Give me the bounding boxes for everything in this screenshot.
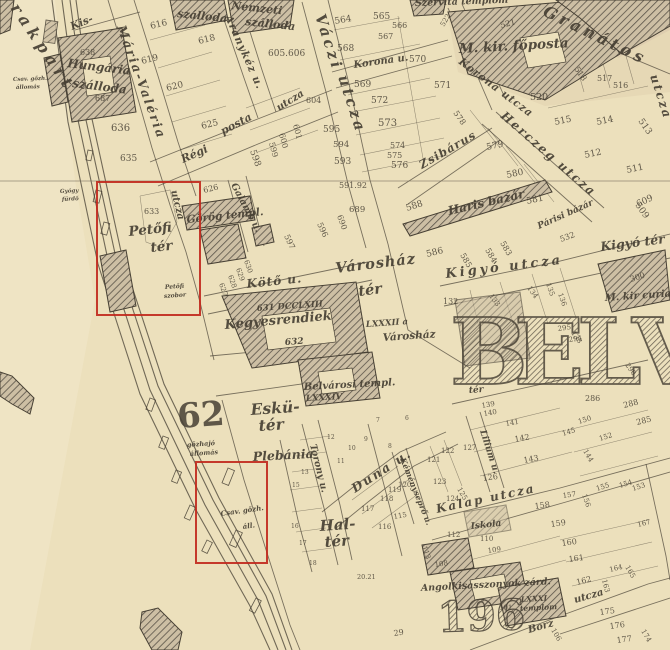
parcel-number: 18 xyxy=(309,560,317,567)
parcel-number: 570 xyxy=(409,55,426,65)
parcel-number: 633 xyxy=(144,207,159,216)
parcel-number: 568 xyxy=(337,44,354,54)
parcel-number: 571 xyxy=(434,81,451,91)
place-label: tér xyxy=(357,280,384,300)
parcel-number: 567 xyxy=(378,32,393,41)
building-label: 632 xyxy=(285,337,304,348)
parcel-number: 593 xyxy=(334,157,351,167)
sheet-number: 62 xyxy=(176,394,226,437)
parcel-number: 123 xyxy=(433,478,446,486)
place-label: Petőfi xyxy=(164,283,185,291)
place-label: tér xyxy=(150,238,174,256)
parcel-number: 110 xyxy=(480,535,493,543)
place-label: Gyógy xyxy=(60,187,80,195)
parcel-number: 10 xyxy=(348,445,356,452)
parcel-number: 9 xyxy=(364,436,368,443)
parcel-number: 575 xyxy=(387,151,402,160)
parcel-number: 8 xyxy=(388,443,392,450)
parcel-number: 29 xyxy=(393,628,404,638)
parcel-number: 605.606 xyxy=(268,49,305,59)
parcel-number: 12 xyxy=(327,434,335,441)
parcel-number: 573 xyxy=(378,118,397,129)
parcel-number: 687 xyxy=(95,94,110,103)
parcel-number: 20.21 xyxy=(357,573,376,581)
parcel-number: 121 xyxy=(427,456,440,464)
place-label: tér xyxy=(324,531,351,551)
parcel-number: 636 xyxy=(111,123,130,134)
building xyxy=(200,224,246,264)
parcel-number: 13 xyxy=(301,469,309,476)
parcel-number: 122 xyxy=(441,447,454,455)
parcel-number: 15 xyxy=(292,482,300,489)
parcel-number: 565 xyxy=(373,12,390,22)
parcel-number: 517 xyxy=(597,74,612,83)
parcel-number: 604 xyxy=(306,96,321,105)
map-viewport: rakpartKis-Mária-ValériautczaAranykéz u.… xyxy=(0,0,670,650)
parcel-number: 11 xyxy=(337,458,345,465)
place-label: állomás xyxy=(16,83,40,91)
parcel-number: 572 xyxy=(371,96,388,106)
parcel-number: 689 xyxy=(349,205,365,215)
map-canvas[interactable]: rakpartKis-Mária-ValériautczaAranykéz u.… xyxy=(0,0,670,650)
parcel-number: 594 xyxy=(333,140,349,150)
parcel-number: 116 xyxy=(378,523,392,531)
parcel-number: 7 xyxy=(376,417,380,424)
parcel-number: 635 xyxy=(120,154,137,164)
parcel-number: 117 xyxy=(361,505,374,513)
parcel-number: 118 xyxy=(380,495,393,503)
parcel-number: 112 xyxy=(447,531,460,539)
parcel-number: 17 xyxy=(299,540,307,547)
parcel-number: 127 xyxy=(463,444,476,452)
parcel-number: 16 xyxy=(291,523,299,530)
parcel-number: 574 xyxy=(390,141,405,150)
sheet-number: 196 xyxy=(437,590,526,642)
parcel-number: 566 xyxy=(392,21,407,30)
parcel-number: 569 xyxy=(354,80,371,90)
place-label: Csav. gőzh. xyxy=(13,75,47,83)
district-letter: V xyxy=(631,298,670,406)
parcel-number: 520 xyxy=(530,92,548,103)
parcel-number: 6 xyxy=(405,415,409,422)
parcel-number: 576 xyxy=(391,161,408,171)
place-label: tér xyxy=(258,414,286,435)
parcel-number: 516 xyxy=(613,81,628,90)
parcel-number: 638 xyxy=(80,48,95,57)
place-label: áll. xyxy=(242,520,255,531)
parcel-number: 591.92 xyxy=(339,181,367,190)
parcel-number: 124 xyxy=(446,495,460,503)
parcel-number: 120 xyxy=(398,481,411,489)
parcel-number: 595 xyxy=(323,125,340,135)
place-label: fürdő xyxy=(61,195,79,203)
building-label: LXXXIV xyxy=(305,392,344,404)
district-letter: E xyxy=(514,298,584,406)
